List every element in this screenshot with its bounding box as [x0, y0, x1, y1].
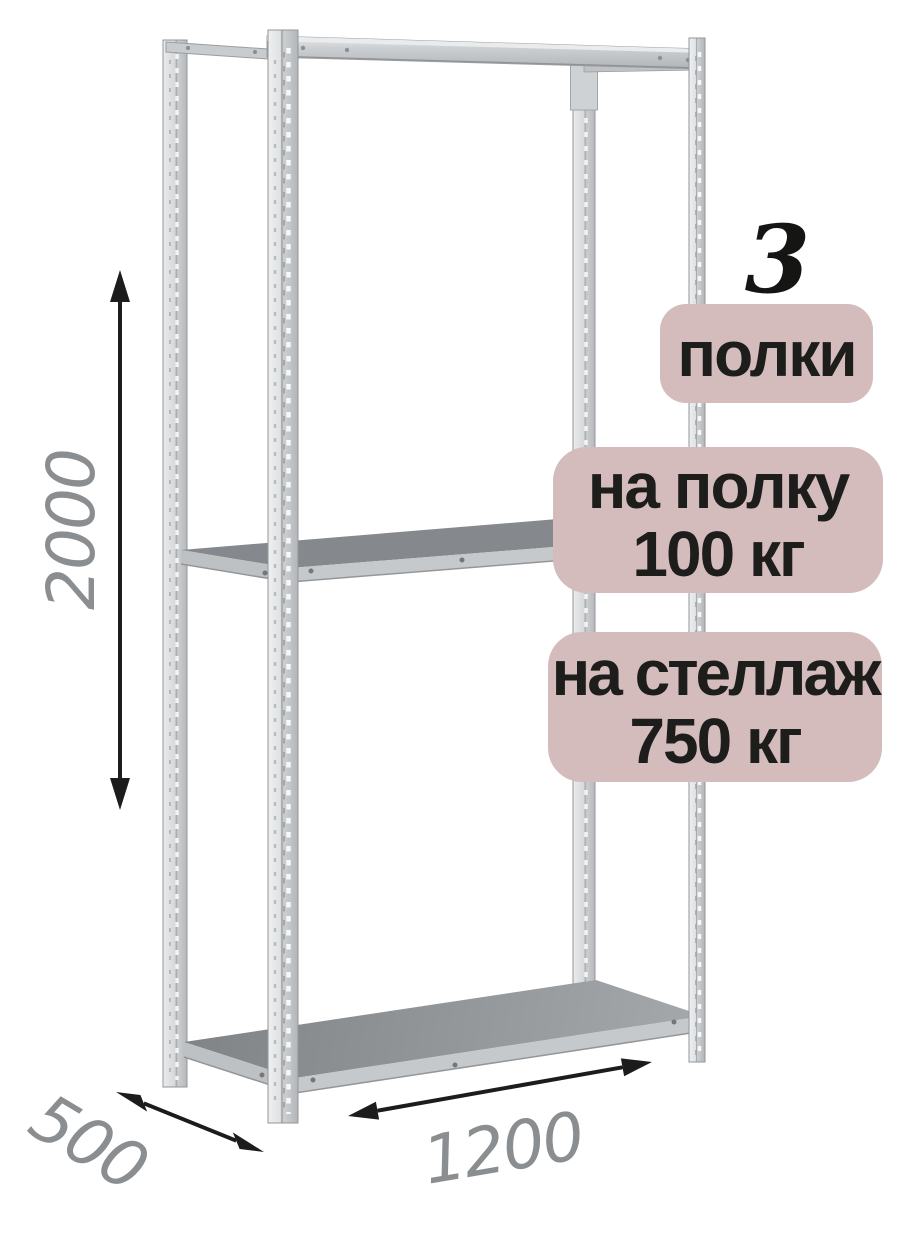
- badge-rack-load: на стеллаж 750 кг: [548, 632, 882, 782]
- bottom-shelf: [184, 980, 704, 1093]
- badge-shelf-load: на полку 100 кг: [553, 447, 883, 593]
- badge-shelf-load-line1: на полку: [588, 452, 848, 520]
- badge-shelf-count: полки: [660, 304, 873, 403]
- shelf-count-number: 3: [700, 208, 855, 313]
- badge-rack-load-line2: 750 кг: [629, 707, 800, 775]
- height-dimension-label: 2000: [27, 410, 117, 650]
- top-shelf-beam: [267, 36, 704, 69]
- badge-shelf-count-label: полки: [677, 320, 855, 388]
- badge-shelf-load-line2: 100 кг: [632, 520, 803, 588]
- shelving-rack-illustration: [0, 0, 900, 1200]
- post-left-front: [268, 30, 298, 1123]
- product-image-page: { "badges": { "bg_color": "#d5bcbc", "te…: [0, 0, 900, 1200]
- badge-rack-load-line1: на стеллаж: [552, 639, 879, 707]
